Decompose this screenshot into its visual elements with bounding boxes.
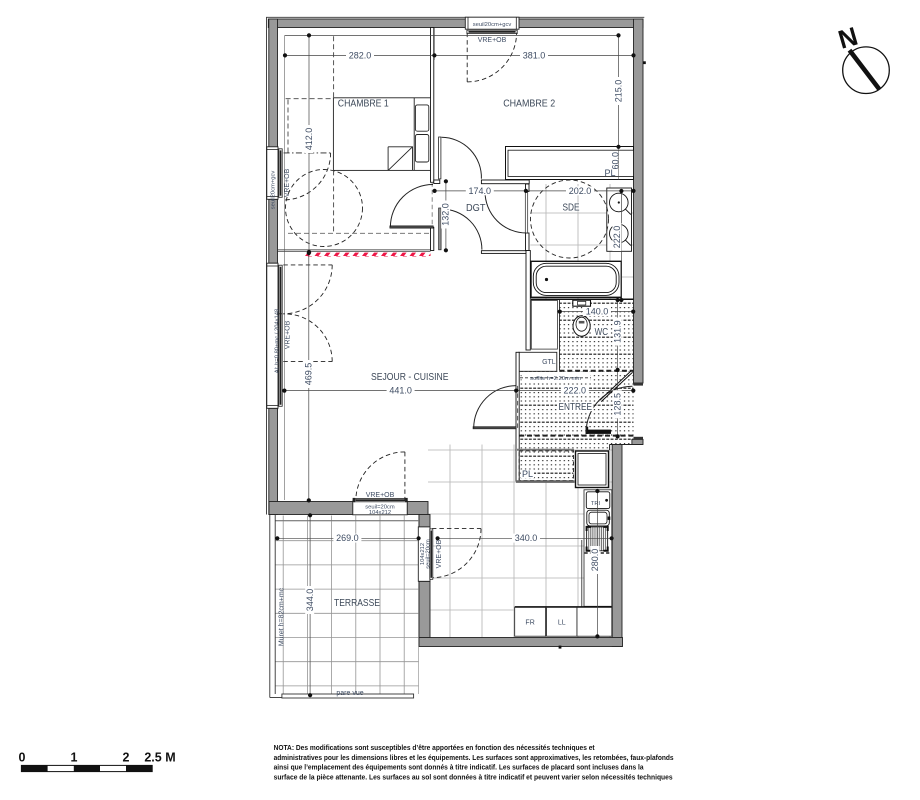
svg-text:344.0: 344.0: [305, 589, 315, 612]
svg-text:seuil=20cm: seuil=20cm: [425, 539, 431, 569]
svg-text:soffite h=2.20m min: soffite h=2.20m min: [530, 376, 581, 382]
svg-text:pare vue: pare vue: [336, 690, 363, 697]
svg-text:2.5 M: 2.5 M: [144, 751, 175, 765]
svg-text:340.0: 340.0: [515, 533, 538, 543]
svg-text:1: 1: [71, 751, 78, 765]
svg-text:104x212: 104x212: [369, 510, 391, 516]
svg-text:Al: h=0.80+mc / 204x148: Al: h=0.80+mc / 204x148: [274, 309, 280, 373]
svg-text:DGT: DGT: [466, 202, 486, 214]
svg-text:VRE+OB: VRE+OB: [366, 492, 395, 499]
svg-text:222.0: 222.0: [564, 386, 587, 396]
svg-text:0: 0: [19, 751, 26, 765]
svg-text:seuil20cm+gcv: seuil20cm+gcv: [271, 171, 277, 210]
svg-text:SEJOUR - CUISINE: SEJOUR - CUISINE: [371, 371, 449, 383]
svg-text:381.0: 381.0: [523, 50, 546, 60]
svg-text:PL: PL: [522, 469, 533, 479]
svg-text:SDE: SDE: [563, 202, 580, 214]
svg-text:282.0: 282.0: [349, 50, 372, 60]
svg-text:174.0: 174.0: [469, 186, 492, 196]
svg-text:NOTA: Des modifications sont s: NOTA: Des modifications sont susceptible…: [274, 745, 596, 752]
svg-text:469.5: 469.5: [304, 363, 314, 386]
svg-text:412.0: 412.0: [304, 128, 314, 151]
svg-text:128.5: 128.5: [612, 393, 622, 416]
svg-text:132.0: 132.0: [441, 203, 451, 226]
svg-text:CHAMBRE 1: CHAMBRE 1: [338, 97, 389, 109]
svg-text:FR: FR: [525, 620, 534, 627]
svg-text:131.9: 131.9: [612, 320, 622, 343]
svg-text:280.0: 280.0: [590, 549, 600, 572]
svg-text:VRE+OB: VRE+OB: [478, 37, 507, 44]
svg-text:TRI: TRI: [591, 501, 601, 507]
svg-text:202.0: 202.0: [569, 186, 592, 196]
svg-text:ainsi que l’emplacement des éq: ainsi que l’emplacement des équipements …: [274, 765, 644, 772]
svg-text:222.0: 222.0: [612, 226, 622, 249]
svg-text:269.0: 269.0: [336, 533, 359, 543]
svg-text:140.0: 140.0: [586, 307, 609, 317]
svg-text:surface de la pièce attenante.: surface de la pièce attenante. Les surfa…: [274, 774, 673, 781]
svg-text:VRE+OB: VRE+OB: [284, 168, 291, 197]
svg-text:GTL: GTL: [542, 359, 556, 366]
svg-text:VRE+OB: VRE+OB: [285, 320, 292, 349]
svg-text:LL: LL: [558, 620, 566, 627]
svg-text:ENTREE: ENTREE: [559, 401, 593, 413]
svg-text:60.0: 60.0: [611, 152, 621, 170]
svg-text:215.0: 215.0: [613, 80, 623, 103]
svg-text:TERRASSE: TERRASSE: [334, 597, 380, 609]
svg-text:CHAMBRE 2: CHAMBRE 2: [503, 98, 555, 110]
svg-text:VRE+OB: VRE+OB: [436, 539, 443, 568]
svg-text:seuil20cm+gcv: seuil20cm+gcv: [473, 22, 512, 28]
svg-text:Muret h=82cm+mc: Muret h=82cm+mc: [278, 587, 285, 646]
svg-text:administratives pour les dimen: administratives pour les dimensions libr…: [274, 755, 674, 762]
svg-text:WC: WC: [595, 326, 609, 338]
svg-text:2: 2: [123, 751, 130, 765]
svg-text:441.0: 441.0: [389, 386, 412, 396]
